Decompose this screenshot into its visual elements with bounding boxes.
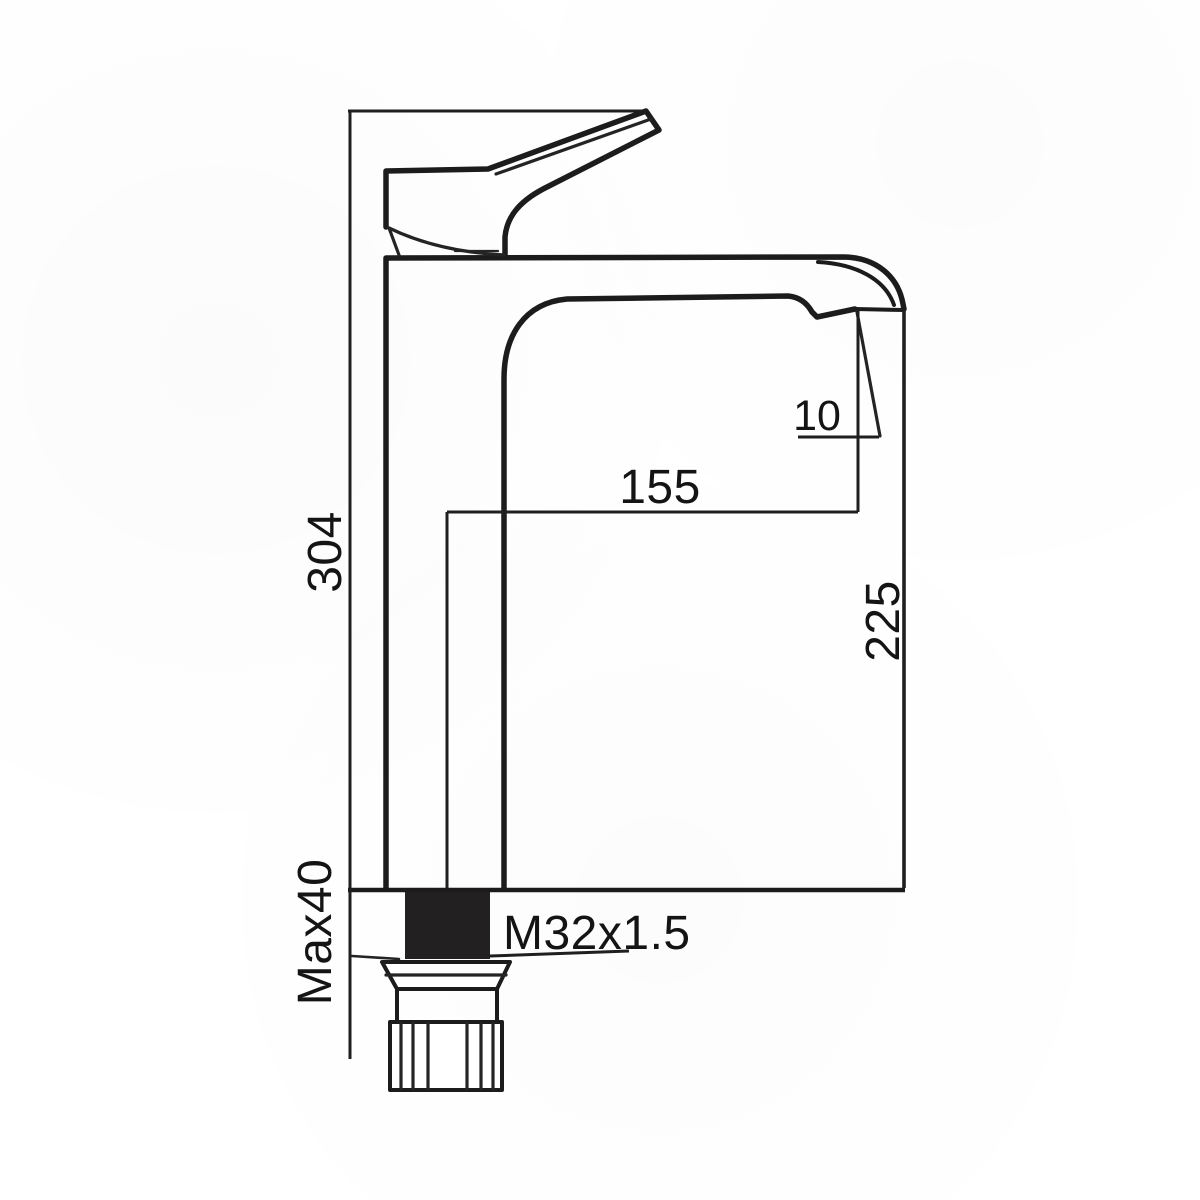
faucet-handle-outline bbox=[386, 111, 659, 257]
mounting-shank-thread bbox=[405, 891, 490, 959]
label-aerator-angle: 10 bbox=[793, 392, 841, 440]
label-spout-reach: 155 bbox=[619, 461, 701, 514]
label-max-thickness: Max40 bbox=[289, 859, 342, 1006]
mounting-nut-outline bbox=[390, 1022, 502, 1090]
label-spout-height: 225 bbox=[857, 580, 910, 662]
label-thread-spec: M32x1.5 bbox=[503, 907, 691, 960]
spout-underside-outline bbox=[504, 296, 855, 888]
label-overall-height: 304 bbox=[299, 511, 352, 593]
aerator-face-line bbox=[857, 312, 880, 436]
aerator-top-edge bbox=[855, 309, 904, 310]
faucet-dimension-drawing: 304 Max40 155 10 225 M32x1.5 bbox=[0, 0, 1200, 1200]
drawing-canvas: 304 Max40 155 10 225 M32x1.5 bbox=[0, 0, 1200, 1200]
faucet-body-outline bbox=[386, 257, 904, 888]
counter-underside-line bbox=[352, 956, 399, 959]
